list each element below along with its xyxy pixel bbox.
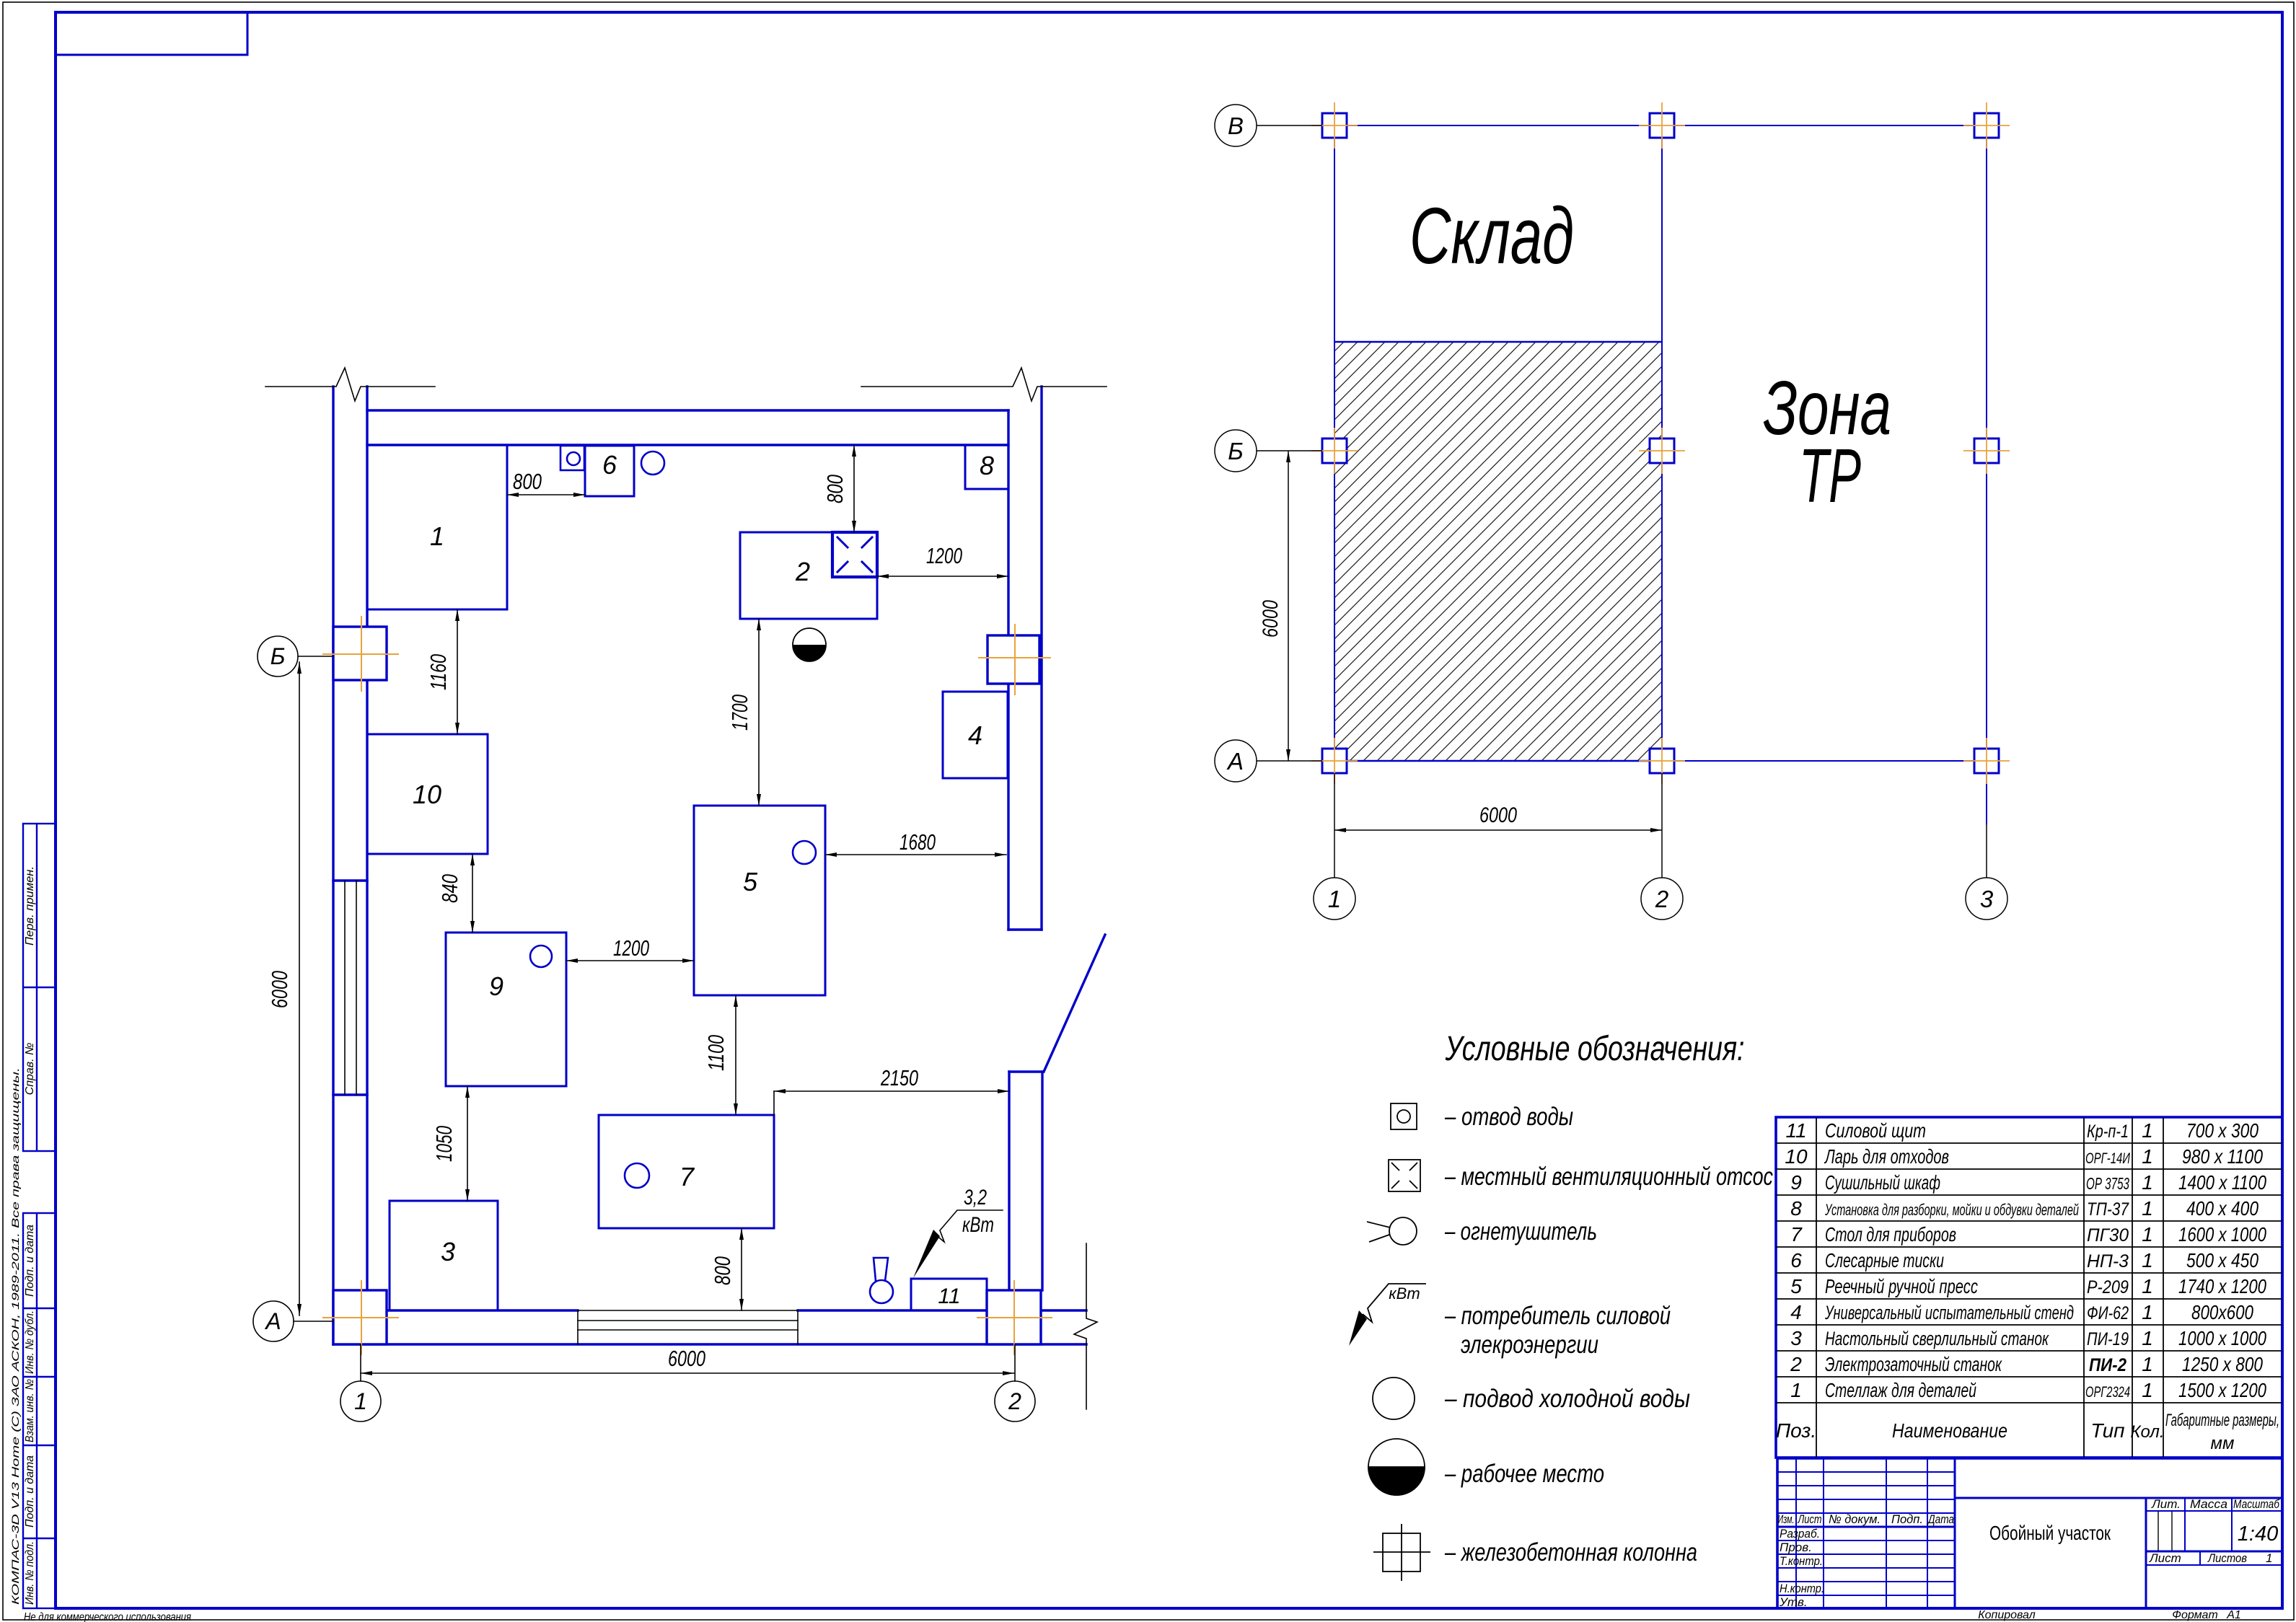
svg-text:Кр-п-1: Кр-п-1	[2087, 1121, 2129, 1142]
svg-text:840: 840	[437, 874, 462, 903]
svg-text:Копировал: Копировал	[1978, 1609, 2036, 1621]
svg-text:1100: 1100	[703, 1035, 729, 1071]
svg-text:Электрозаточный станок: Электрозаточный станок	[1825, 1353, 2002, 1375]
svg-text:1: 1	[2142, 1119, 2153, 1142]
svg-text:800: 800	[822, 475, 848, 503]
svg-text:– потребитель силовой: – потребитель силовой	[1444, 1302, 1671, 1330]
svg-text:А: А	[264, 1308, 281, 1334]
svg-text:Т.контр.: Т.контр.	[1780, 1554, 1823, 1568]
svg-text:Реечный ручной пресс: Реечный ручной пресс	[1825, 1275, 1978, 1297]
svg-text:3: 3	[1790, 1327, 1802, 1349]
svg-text:Подп.: Подп.	[1891, 1512, 1923, 1526]
svg-text:1200: 1200	[613, 935, 649, 961]
svg-text:6: 6	[602, 450, 617, 480]
svg-text:4: 4	[1790, 1301, 1802, 1323]
svg-text:Масштаб: Масштаб	[2233, 1497, 2280, 1511]
svg-text:Подп. и дата: Подп. и дата	[24, 1455, 36, 1528]
svg-text:– огнетушитель: – огнетушитель	[1444, 1217, 1597, 1246]
svg-text:– местный вентиляционный отсос: – местный вентиляционный отсос	[1444, 1163, 1773, 1191]
svg-text:ФИ-62: ФИ-62	[2087, 1303, 2129, 1323]
svg-text:Стол для приборов: Стол для приборов	[1825, 1223, 1956, 1246]
svg-text:1: 1	[354, 1388, 367, 1414]
svg-text:1: 1	[2142, 1327, 2153, 1349]
svg-text:1: 1	[1790, 1379, 1802, 1401]
svg-text:6000: 6000	[267, 971, 292, 1008]
svg-text:ПГ30: ПГ30	[2087, 1225, 2129, 1246]
svg-text:3: 3	[441, 1237, 455, 1266]
svg-text:400 х 400: 400 х 400	[2186, 1197, 2258, 1220]
svg-text:5: 5	[743, 867, 758, 896]
svg-text:1700: 1700	[727, 695, 752, 731]
svg-text:Взам. инв. №: Взам. инв. №	[24, 1379, 36, 1442]
svg-text:Р-209: Р-209	[2087, 1277, 2129, 1297]
svg-text:Склад: Склад	[1409, 192, 1574, 281]
svg-text:мм: мм	[2211, 1434, 2235, 1453]
svg-text:11: 11	[1785, 1119, 1806, 1142]
svg-text:2150: 2150	[880, 1065, 918, 1090]
svg-text:Н.контр.: Н.контр.	[1780, 1582, 1824, 1595]
svg-text:ТР: ТР	[1799, 433, 1861, 519]
svg-text:3: 3	[1980, 886, 1994, 912]
svg-text:Изм.: Изм.	[1778, 1512, 1795, 1526]
svg-text:3,2: 3,2	[964, 1186, 987, 1209]
svg-text:1:40: 1:40	[2238, 1522, 2278, 1546]
svg-text:№ докум.: № докум.	[1829, 1512, 1881, 1526]
svg-text:Лит.: Лит.	[2151, 1497, 2181, 1511]
svg-text:5: 5	[1790, 1275, 1802, 1297]
svg-text:2: 2	[1008, 1388, 1021, 1414]
svg-text:– подвод холодной воды: – подвод холодной воды	[1444, 1385, 1690, 1413]
svg-text:2: 2	[1790, 1353, 1802, 1375]
svg-text:Ларь для отходов: Ларь для отходов	[1824, 1145, 1949, 1168]
svg-text:Утв.: Утв.	[1779, 1595, 1808, 1609]
svg-text:ПИ-2: ПИ-2	[2089, 1355, 2126, 1375]
svg-text:800: 800	[513, 469, 542, 494]
svg-text:Габаритные размеры,: Габаритные размеры,	[2165, 1411, 2279, 1430]
svg-text:700 х 300: 700 х 300	[2186, 1119, 2258, 1142]
svg-text:Сушильный шкаф: Сушильный шкаф	[1825, 1171, 1940, 1194]
svg-text:1160: 1160	[426, 654, 451, 690]
svg-text:– отвод воды: – отвод воды	[1444, 1103, 1573, 1131]
svg-text:А: А	[1226, 748, 1244, 775]
svg-text:2: 2	[1655, 886, 1668, 912]
svg-text:Инв. № дубл.: Инв. № дубл.	[24, 1310, 36, 1374]
svg-text:Справ. №: Справ. №	[24, 1043, 36, 1096]
svg-text:8: 8	[980, 451, 994, 480]
svg-text:Перв. примен.: Перв. примен.	[24, 866, 36, 946]
svg-text:кВт: кВт	[1389, 1284, 1420, 1303]
svg-text:1: 1	[2142, 1275, 2153, 1297]
svg-text:Б: Б	[270, 643, 286, 669]
svg-text:Универсальный испытательный ст: Универсальный испытательный стенд	[1824, 1302, 2074, 1323]
svg-text:ПИ-19: ПИ-19	[2087, 1329, 2129, 1349]
svg-text:КОМПАС-3D V13 Home (С) ЗАО АСК: КОМПАС-3D V13 Home (С) ЗАО АСКОН, 1989-2…	[9, 1067, 21, 1605]
svg-text:Масса: Масса	[2190, 1497, 2227, 1511]
svg-text:1: 1	[2142, 1379, 2153, 1401]
svg-text:Листов: Листов	[2207, 1551, 2247, 1565]
svg-text:– рабочее место: – рабочее место	[1444, 1460, 1604, 1488]
svg-text:В: В	[1228, 113, 1244, 139]
svg-text:500 х 450: 500 х 450	[2186, 1249, 2258, 1271]
svg-text:1600 х 1000: 1600 х 1000	[2178, 1223, 2266, 1246]
svg-text:10: 10	[1785, 1145, 1808, 1168]
svg-text:Не для коммерческого использов: Не для коммерческого использования	[24, 1611, 191, 1622]
svg-text:10: 10	[413, 780, 441, 809]
svg-text:9: 9	[1790, 1171, 1802, 1194]
svg-text:1250 х 800: 1250 х 800	[2182, 1353, 2263, 1375]
svg-text:Б: Б	[1228, 438, 1243, 464]
svg-text:Тип: Тип	[2090, 1419, 2124, 1442]
svg-text:кВт: кВт	[962, 1213, 994, 1237]
svg-text:Кол.: Кол.	[2130, 1422, 2164, 1442]
svg-text:980 х 1100: 980 х 1100	[2182, 1145, 2263, 1168]
svg-text:ОРГ-14И: ОРГ-14И	[2085, 1150, 2131, 1167]
svg-text:Установка для разборки, мойки: Установка для разборки, мойки и обдувки …	[1824, 1201, 2079, 1219]
svg-text:Наименование: Наименование	[1892, 1419, 2007, 1442]
svg-text:Формат: Формат	[2172, 1609, 2218, 1621]
svg-text:7: 7	[679, 1162, 695, 1191]
svg-text:Силовой щит: Силовой щит	[1825, 1119, 1926, 1142]
svg-text:1050: 1050	[431, 1126, 457, 1162]
svg-text:Лист: Лист	[1798, 1512, 1822, 1526]
svg-text:6000: 6000	[1479, 803, 1517, 827]
svg-text:Пров.: Пров.	[1780, 1541, 1812, 1554]
svg-text:1740 х 1200: 1740 х 1200	[2178, 1275, 2266, 1297]
svg-text:Поз.: Поз.	[1776, 1419, 1816, 1442]
svg-text:– железобетонная колонна: – железобетонная колонна	[1444, 1538, 1697, 1566]
svg-text:1: 1	[2266, 1551, 2272, 1565]
svg-text:Дата: Дата	[1927, 1512, 1954, 1526]
svg-text:1200: 1200	[926, 543, 962, 568]
svg-text:Лист: Лист	[2149, 1551, 2181, 1565]
svg-text:1680: 1680	[900, 829, 936, 855]
svg-text:2: 2	[795, 557, 810, 586]
svg-text:Слесарные тиски: Слесарные тиски	[1825, 1249, 1944, 1271]
svg-text:ТП-37: ТП-37	[2087, 1199, 2129, 1220]
svg-text:1: 1	[2142, 1353, 2153, 1375]
svg-text:Подп. и дата: Подп. и дата	[24, 1225, 36, 1297]
svg-text:Разраб.: Разраб.	[1780, 1527, 1820, 1541]
svg-text:Условные обозначения:: Условные обозначения:	[1445, 1030, 1745, 1068]
svg-text:Инв. № подл.: Инв. № подл.	[24, 1541, 36, 1605]
svg-text:8: 8	[1790, 1197, 1802, 1220]
svg-text:Стеллаж для деталей: Стеллаж для деталей	[1825, 1379, 1976, 1401]
svg-text:1: 1	[2142, 1301, 2153, 1323]
svg-text:1: 1	[430, 521, 444, 551]
svg-text:элекроэнергии: элекроэнергии	[1461, 1331, 1598, 1359]
svg-text:Настольный сверлильный станок: Настольный сверлильный станок	[1825, 1328, 2049, 1349]
svg-text:800: 800	[710, 1256, 735, 1285]
svg-text:1500 х 1200: 1500 х 1200	[2178, 1379, 2266, 1401]
svg-text:1400 х 1100: 1400 х 1100	[2178, 1171, 2266, 1194]
svg-text:800х600: 800х600	[2191, 1301, 2253, 1323]
svg-text:11: 11	[938, 1284, 960, 1308]
svg-text:9: 9	[489, 971, 503, 1001]
svg-text:1: 1	[2142, 1197, 2153, 1220]
svg-text:НП-3: НП-3	[2087, 1251, 2129, 1271]
svg-text:1: 1	[2142, 1223, 2153, 1246]
svg-text:1: 1	[1328, 886, 1341, 912]
svg-text:1000 х 1000: 1000 х 1000	[2178, 1327, 2266, 1349]
svg-text:А1: А1	[2226, 1609, 2241, 1621]
svg-text:6000: 6000	[668, 1346, 705, 1371]
svg-text:6000: 6000	[1259, 600, 1283, 638]
svg-text:ОРГ2324: ОРГ2324	[2085, 1384, 2130, 1401]
svg-text:ОР 3753: ОР 3753	[2086, 1174, 2129, 1193]
svg-text:4: 4	[968, 720, 982, 750]
svg-text:1: 1	[2142, 1145, 2153, 1168]
svg-text:7: 7	[1790, 1223, 1803, 1246]
svg-text:1: 1	[2142, 1249, 2153, 1271]
svg-text:6: 6	[1790, 1249, 1802, 1271]
svg-text:Обойный участок: Обойный участок	[1989, 1522, 2111, 1544]
svg-text:1: 1	[2142, 1171, 2153, 1194]
